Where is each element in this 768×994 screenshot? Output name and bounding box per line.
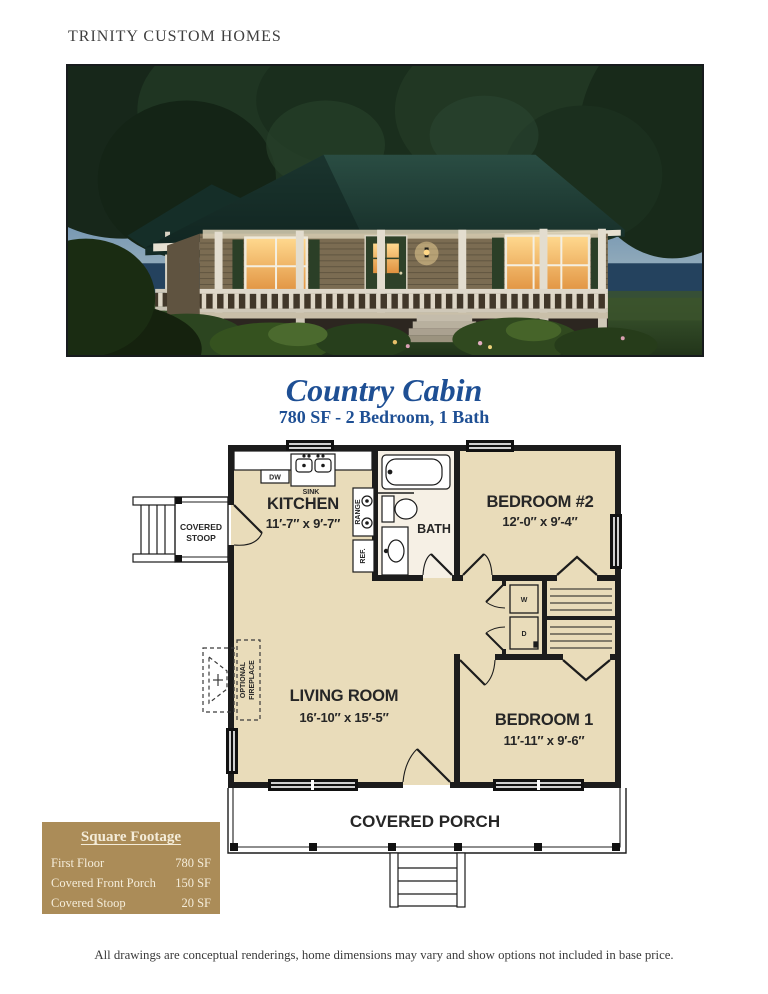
front-window-left — [232, 238, 319, 294]
fireplace-label-1: OPTIONAL — [240, 661, 247, 698]
bath-label: BATH — [417, 522, 451, 536]
disclaimer-text: All drawings are conceptual renderings, … — [0, 948, 768, 963]
row-value: 20 SF — [181, 893, 211, 913]
brand-header: TRINITY CUSTOM HOMES — [68, 28, 282, 46]
row-label: First Floor — [51, 853, 104, 873]
porch-railing — [200, 289, 608, 313]
kitchen-label: KITCHEN — [267, 495, 339, 513]
plan-title: Country Cabin — [0, 372, 768, 409]
dw-label: DW — [269, 475, 281, 482]
bedroom2-side-window — [610, 514, 622, 569]
porch-sconce-light — [415, 242, 439, 266]
square-footage-title: Square Footage — [51, 829, 211, 846]
table-row: First Floor 780 SF — [51, 853, 211, 873]
bedroom1-label: BEDROOM 1 — [495, 711, 593, 729]
covered-stoop-label-1: COVERED — [180, 522, 222, 532]
square-footage-table: Square Footage First Floor 780 SF Covere… — [42, 822, 220, 914]
row-value: 150 SF — [175, 873, 211, 893]
porch-stairs — [390, 853, 465, 907]
row-value: 780 SF — [175, 853, 211, 873]
living-side-window — [226, 728, 238, 774]
bedroom2-dims: 12′-0″ x 9′-4″ — [502, 514, 577, 529]
bath-vanity — [382, 527, 408, 575]
bedroom1-front-window — [493, 779, 584, 791]
bedroom2-label: BEDROOM #2 — [486, 493, 593, 511]
bedroom1-dims: 11′-11″ x 9′-6″ — [504, 733, 585, 748]
brochure-page: TRINITY CUSTOM HOMES — [0, 0, 768, 994]
living-front-window — [268, 779, 358, 791]
plan-subtitle: 780 SF - 2 Bedroom, 1 Bath — [0, 407, 768, 428]
table-row: Covered Stoop 20 SF — [51, 893, 211, 913]
sink-label: SINK — [303, 489, 320, 496]
row-label: Covered Front Porch — [51, 873, 156, 893]
living-room-dims: 16′-10″ x 15′-5″ — [299, 710, 388, 725]
bedroom2-top-window — [466, 440, 514, 452]
covered-porch — [228, 788, 626, 907]
house-photo-scene — [68, 66, 702, 355]
kitchen-window — [286, 440, 334, 452]
washer-label: W — [521, 597, 528, 604]
ref-label: REF. — [360, 548, 367, 563]
covered-stoop-label-2: STOOP — [186, 533, 216, 543]
covered-porch-label: COVERED PORCH — [350, 812, 500, 831]
row-label: Covered Stoop — [51, 893, 126, 913]
stoop-stairs — [133, 497, 175, 562]
dryer-label: D — [521, 631, 526, 638]
house-photo — [66, 64, 704, 357]
kitchen-dims: 11′-7″ x 9′-7″ — [266, 516, 340, 531]
front-window-right — [492, 236, 603, 294]
fireplace-label-2: FIREPLACE — [249, 660, 256, 700]
living-room-label: LIVING ROOM — [290, 687, 399, 705]
table-row: Covered Front Porch 150 SF — [51, 873, 211, 893]
range-label: RANGE — [355, 499, 362, 525]
porch-floor — [200, 313, 608, 319]
